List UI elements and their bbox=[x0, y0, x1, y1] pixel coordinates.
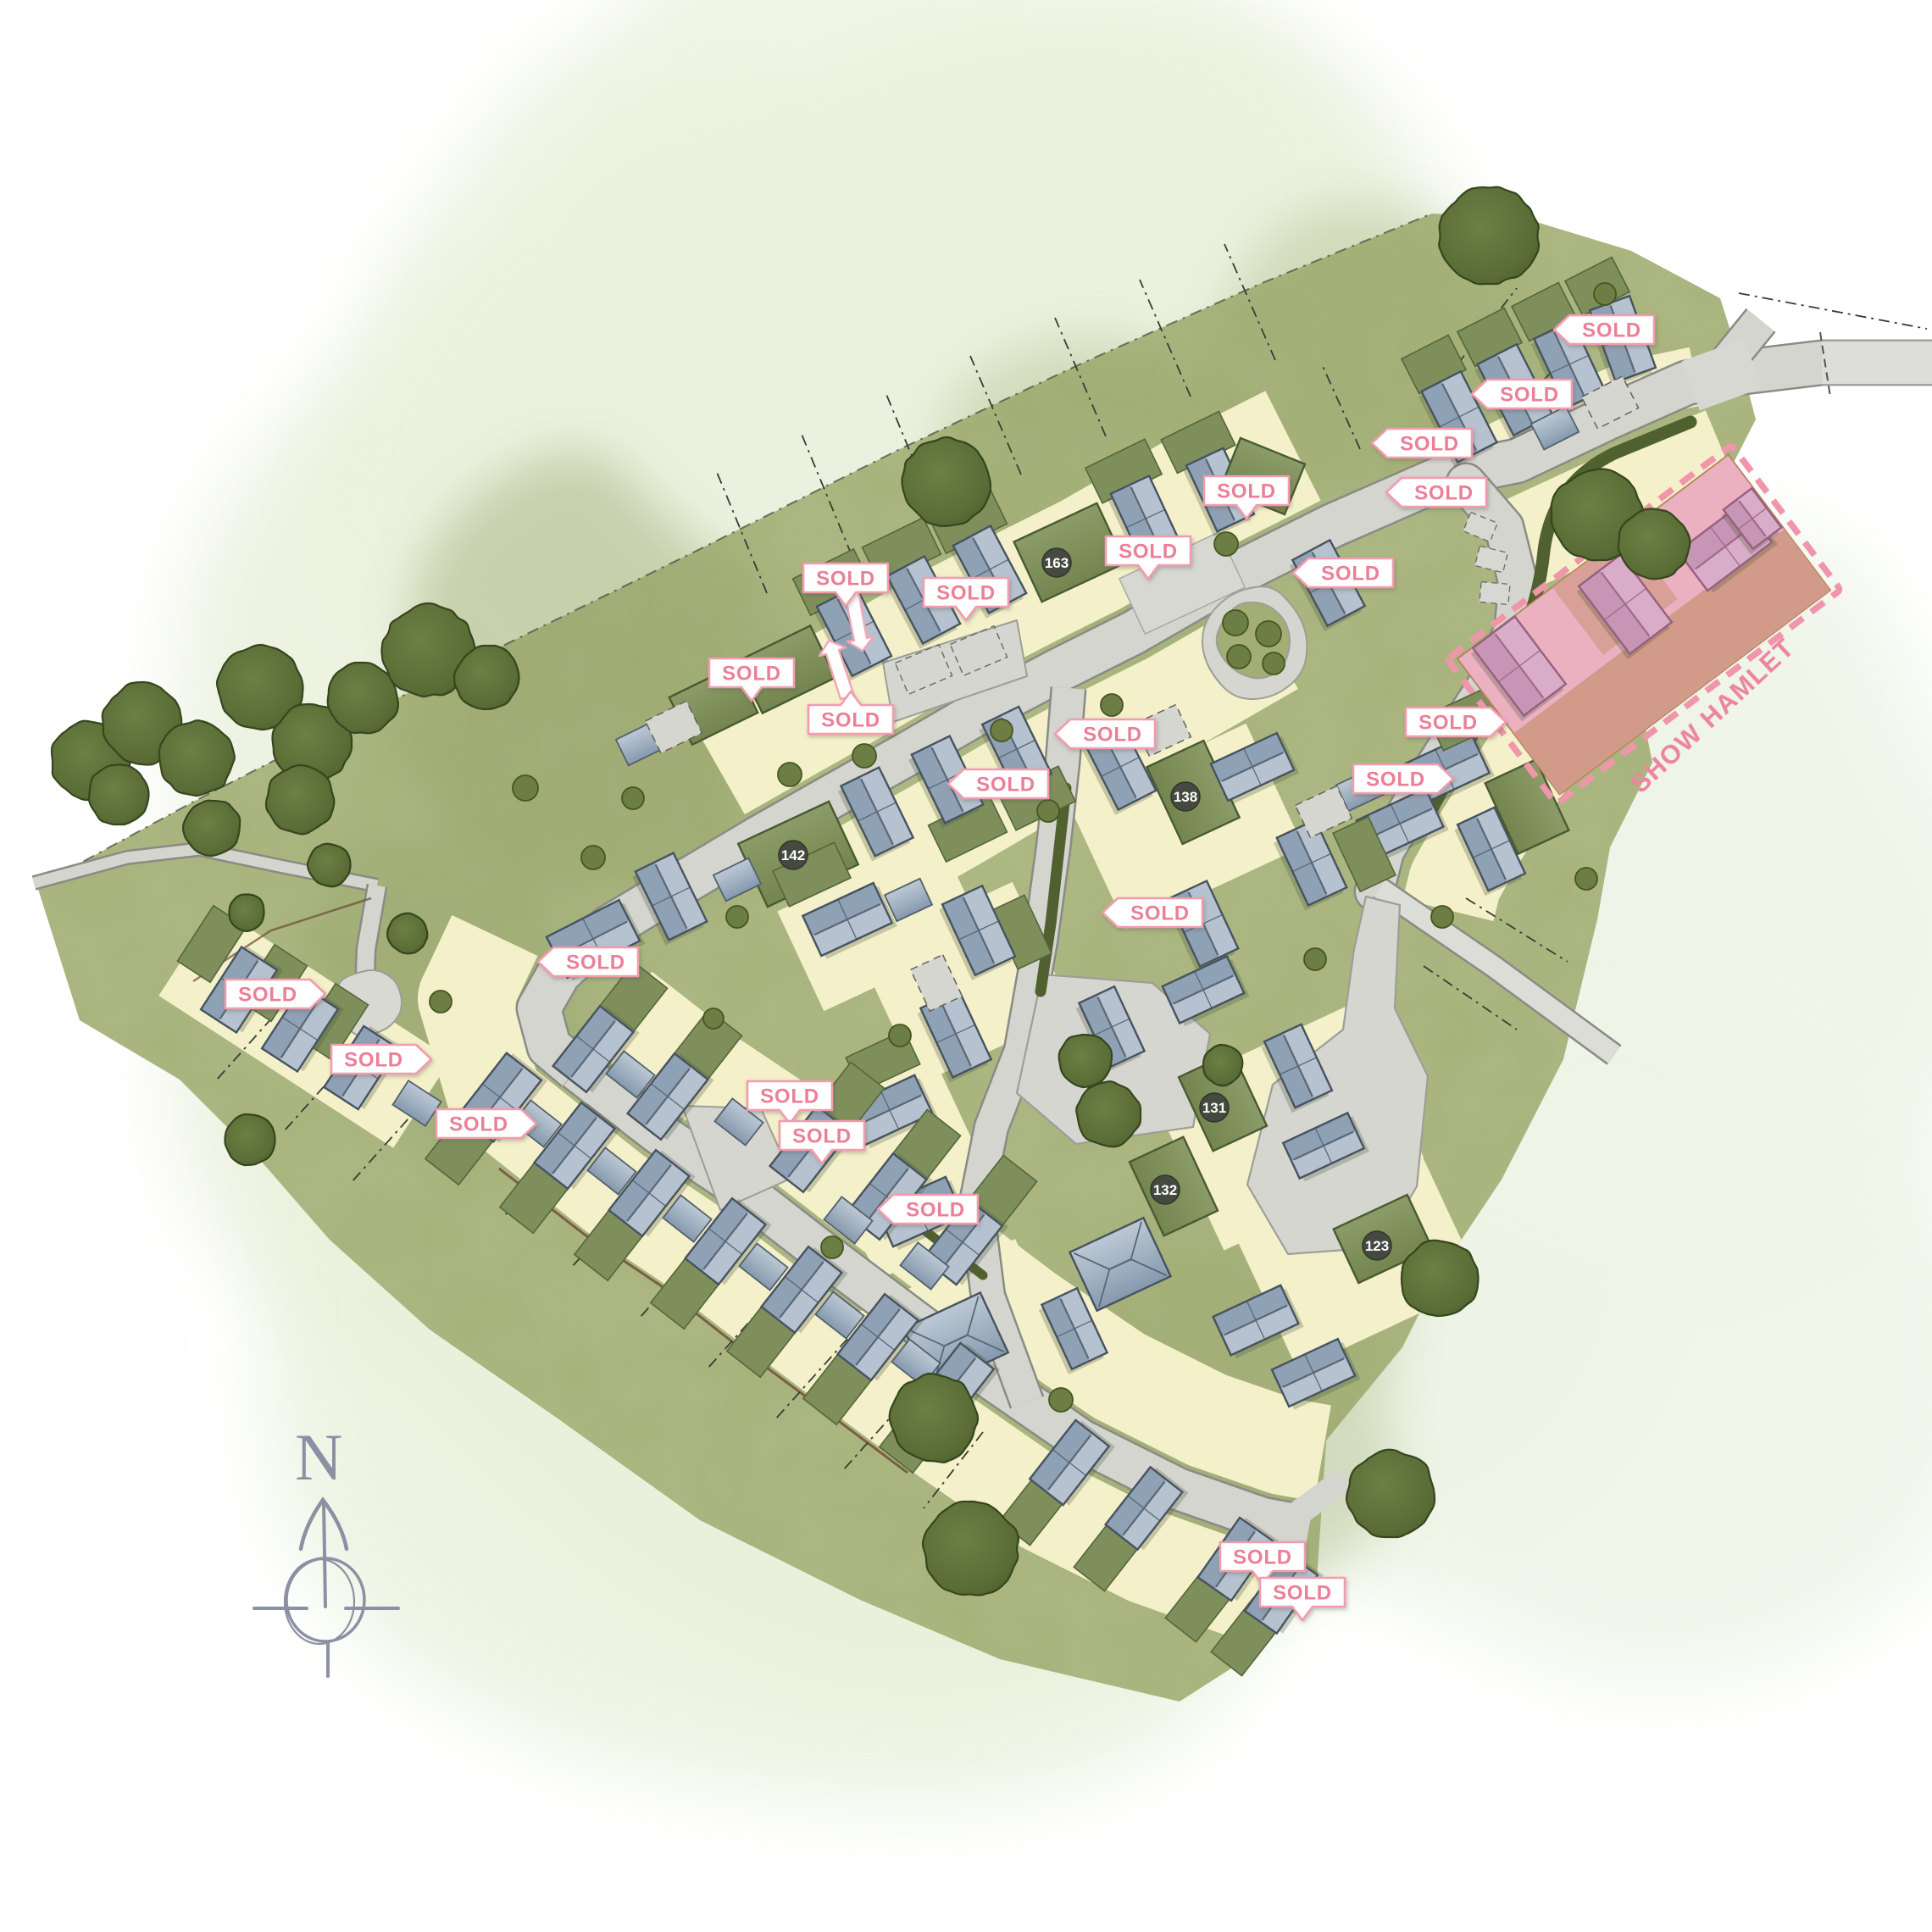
svg-text:SOLD: SOLD bbox=[722, 663, 781, 686]
svg-text:SOLD: SOLD bbox=[1233, 1546, 1292, 1569]
svg-text:SOLD: SOLD bbox=[1414, 482, 1474, 505]
svg-text:SOLD: SOLD bbox=[1273, 1582, 1332, 1605]
svg-text:SOLD: SOLD bbox=[821, 709, 880, 732]
svg-text:132: 132 bbox=[1153, 1182, 1177, 1198]
svg-text:SOLD: SOLD bbox=[1400, 433, 1459, 456]
svg-text:SOLD: SOLD bbox=[1130, 902, 1190, 925]
svg-text:SOLD: SOLD bbox=[906, 1199, 965, 1222]
svg-text:N: N bbox=[295, 1420, 342, 1494]
svg-text:SOLD: SOLD bbox=[1217, 480, 1276, 503]
svg-text:SOLD: SOLD bbox=[449, 1113, 508, 1136]
svg-text:SOLD: SOLD bbox=[238, 984, 297, 1007]
svg-text:138: 138 bbox=[1174, 789, 1197, 805]
svg-text:SOLD: SOLD bbox=[936, 582, 996, 605]
svg-text:SOLD: SOLD bbox=[976, 774, 1035, 797]
svg-text:SOLD: SOLD bbox=[1418, 712, 1478, 735]
svg-text:163: 163 bbox=[1045, 555, 1069, 571]
svg-text:123: 123 bbox=[1365, 1238, 1389, 1254]
svg-text:SOLD: SOLD bbox=[566, 952, 625, 974]
svg-text:SOLD: SOLD bbox=[1119, 541, 1178, 563]
svg-text:SOLD: SOLD bbox=[1083, 724, 1142, 747]
svg-text:SOLD: SOLD bbox=[760, 1085, 819, 1108]
svg-text:SOLD: SOLD bbox=[344, 1049, 403, 1072]
svg-text:142: 142 bbox=[781, 847, 805, 863]
svg-text:SOLD: SOLD bbox=[816, 568, 875, 591]
svg-text:SOLD: SOLD bbox=[1500, 384, 1559, 407]
svg-text:SOLD: SOLD bbox=[1582, 319, 1641, 342]
svg-text:131: 131 bbox=[1202, 1100, 1226, 1116]
svg-text:SOLD: SOLD bbox=[792, 1125, 852, 1148]
svg-text:SOLD: SOLD bbox=[1366, 769, 1425, 791]
svg-text:SOLD: SOLD bbox=[1321, 563, 1380, 586]
